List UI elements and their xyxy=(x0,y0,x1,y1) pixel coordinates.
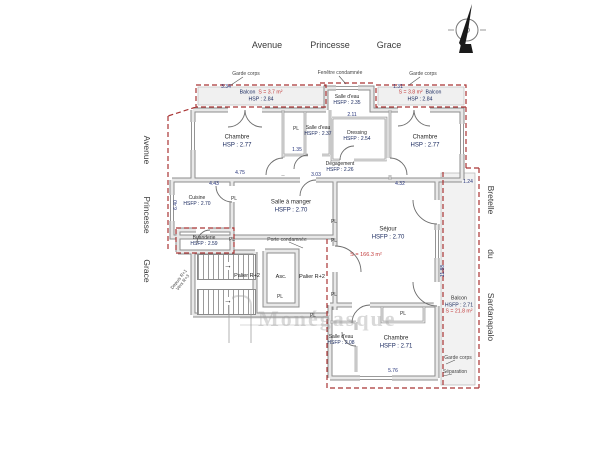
dimension-label: 5.76 xyxy=(388,368,398,374)
room-height: HSFP : 2.71 xyxy=(380,343,413,349)
room-name: Séjour xyxy=(372,227,405,235)
room-height: HSFP : 2.54 xyxy=(343,136,370,142)
balcony-height: HSP : 2.84 xyxy=(408,96,433,102)
dimension-label: 1.35 xyxy=(292,147,302,153)
closet-label: PL xyxy=(331,292,337,298)
room-name: Chambre xyxy=(223,135,252,143)
dimension-label: 4.32 xyxy=(395,181,405,187)
street-top-grace: Grace xyxy=(377,40,402,50)
balcony-floor-right xyxy=(441,173,475,385)
room-height: HSFP : 2.70 xyxy=(372,234,405,240)
room-height: HSFP : 2.59 xyxy=(190,241,217,247)
floor-plan-page: Monégasque Avenue Princesse Grace Avenue… xyxy=(0,0,600,453)
watermark-text: Monégasque xyxy=(258,306,397,332)
balcony-height: HSFP : 2.71 xyxy=(445,302,473,308)
balcony-area: S = 21.8 m² xyxy=(446,308,473,314)
room-height: HSP : 2.77 xyxy=(223,142,252,148)
agency-watermark: Monégasque xyxy=(228,295,397,343)
note-separation: Séparation xyxy=(443,369,467,375)
total-surface-label: S = 166.3 m² xyxy=(350,252,382,258)
room-label-buanderie: Buanderie HSFP : 2.59 xyxy=(190,235,217,248)
room-label-chambre-2: Chambre HSP : 2.77 xyxy=(411,135,440,150)
street-right-du: du xyxy=(486,249,496,258)
closet-label: PL xyxy=(231,196,237,202)
balcony-area: S = 3.7 m² xyxy=(258,90,282,96)
room-height: HSFP : 2.70 xyxy=(183,201,210,207)
note-garde-corps-bottom: Garde corps xyxy=(444,355,472,361)
street-right-bretelle: Bretelle xyxy=(486,186,496,215)
dimension-label: 6.40 xyxy=(173,200,179,210)
balcony-name: Balcon xyxy=(240,90,256,96)
street-top-avenue: Avenue xyxy=(252,40,282,50)
room-label-salle-a-manger: Salle à manger HSFP : 2.70 xyxy=(271,200,311,215)
street-left-grace: Grace xyxy=(142,259,152,282)
room-label-salle-eau-1: Salle d'eau HSFP : 2.37 xyxy=(304,125,331,138)
closet-label: PL xyxy=(293,126,299,132)
room-height: HSFP : 2.70 xyxy=(275,207,308,213)
room-height: HSFP : 2.26 xyxy=(326,167,353,173)
room-label-chambre-1: Chambre HSP : 2.77 xyxy=(223,135,252,150)
room-name: Chambre xyxy=(411,135,440,143)
room-label-salle-eau-2: Salle d'eau HSFP : 2.35 xyxy=(333,94,360,107)
room-label-cuisine: Cuisine HSFP : 2.70 xyxy=(183,195,210,208)
balcony-label-top-right: S = 3.8 m² Balcon HSP : 2.84 xyxy=(399,90,442,103)
room-height: HSFP : 2.08 xyxy=(327,340,354,346)
palier-right-label: Palier R+2 xyxy=(299,274,325,280)
balcony-height: HSP : 2.84 xyxy=(249,96,274,102)
north-arrow-icon xyxy=(448,4,486,53)
street-right-sardanapalo: Sardanapalo xyxy=(486,293,496,341)
note-fenetre-condamnee: Fenêtre condamnée xyxy=(318,70,363,76)
dimension-label: 4.75 xyxy=(235,170,245,176)
balcony-area: S = 3.8 m² xyxy=(399,90,423,96)
balcony-label-top-left: Balcon S = 3.7 m² HSP : 2.84 xyxy=(240,90,283,103)
room-height: HSP : 2.77 xyxy=(411,142,440,148)
balcony-name: Balcon xyxy=(426,90,442,96)
dimension-label: 3.03 xyxy=(311,172,321,178)
balcony-line: S = 3.8 m² Balcon xyxy=(399,90,442,96)
closet-label: PL xyxy=(400,311,406,317)
room-label-dressing: Dressing HSFP : 2.54 xyxy=(343,130,370,143)
dimension-label: 1.24 xyxy=(463,179,473,185)
dimension-label: 3.34 xyxy=(221,84,231,90)
street-top-princesse: Princesse xyxy=(310,40,350,50)
closet-label: PL xyxy=(310,313,316,319)
street-left-princesse: Princesse xyxy=(142,196,152,233)
closet-label: PL xyxy=(229,237,235,243)
note-garde-corps-right: Garde corps xyxy=(409,71,437,77)
room-height: HSFP : 2.37 xyxy=(304,131,331,137)
dimension-label: 11.88 xyxy=(440,265,446,277)
room-name: Salle à manger xyxy=(271,200,311,208)
stairs-arrow-down: → xyxy=(224,297,232,305)
note-porte-condamnee: Porte condamnée xyxy=(267,237,306,243)
closet-label: PL xyxy=(277,294,283,300)
room-label-sejour: Séjour HSFP : 2.70 xyxy=(372,227,405,242)
closet-label: PL xyxy=(331,219,337,225)
room-label-chambre-3: Chambre HSFP : 2.71 xyxy=(380,336,413,351)
room-height: HSFP : 2.35 xyxy=(333,100,360,106)
note-garde-corps-left: Garde corps xyxy=(232,71,260,77)
elevator-label: Asc. xyxy=(276,274,287,280)
floor-plan-drawing xyxy=(0,0,600,453)
dimension-label: 2.11 xyxy=(347,112,356,118)
stairs-arrow-up: → xyxy=(224,262,232,270)
balcony-label-right: Balcon HSFP : 2.71 S = 21.8 m² xyxy=(445,295,473,315)
closet-label: PL xyxy=(331,238,337,244)
street-left-avenue: Avenue xyxy=(142,136,152,165)
room-label-degagement: Dégagement HSFP : 2.26 xyxy=(326,161,355,174)
palier-left-label: Palier R+2 xyxy=(234,273,260,279)
balcony-line: Balcon S = 3.7 m² xyxy=(240,90,283,96)
room-name: Chambre xyxy=(380,336,413,344)
dimension-label: 4.43 xyxy=(209,181,219,187)
room-label-salle-eau-3: Salle d'eau HSFP : 2.08 xyxy=(327,334,354,347)
